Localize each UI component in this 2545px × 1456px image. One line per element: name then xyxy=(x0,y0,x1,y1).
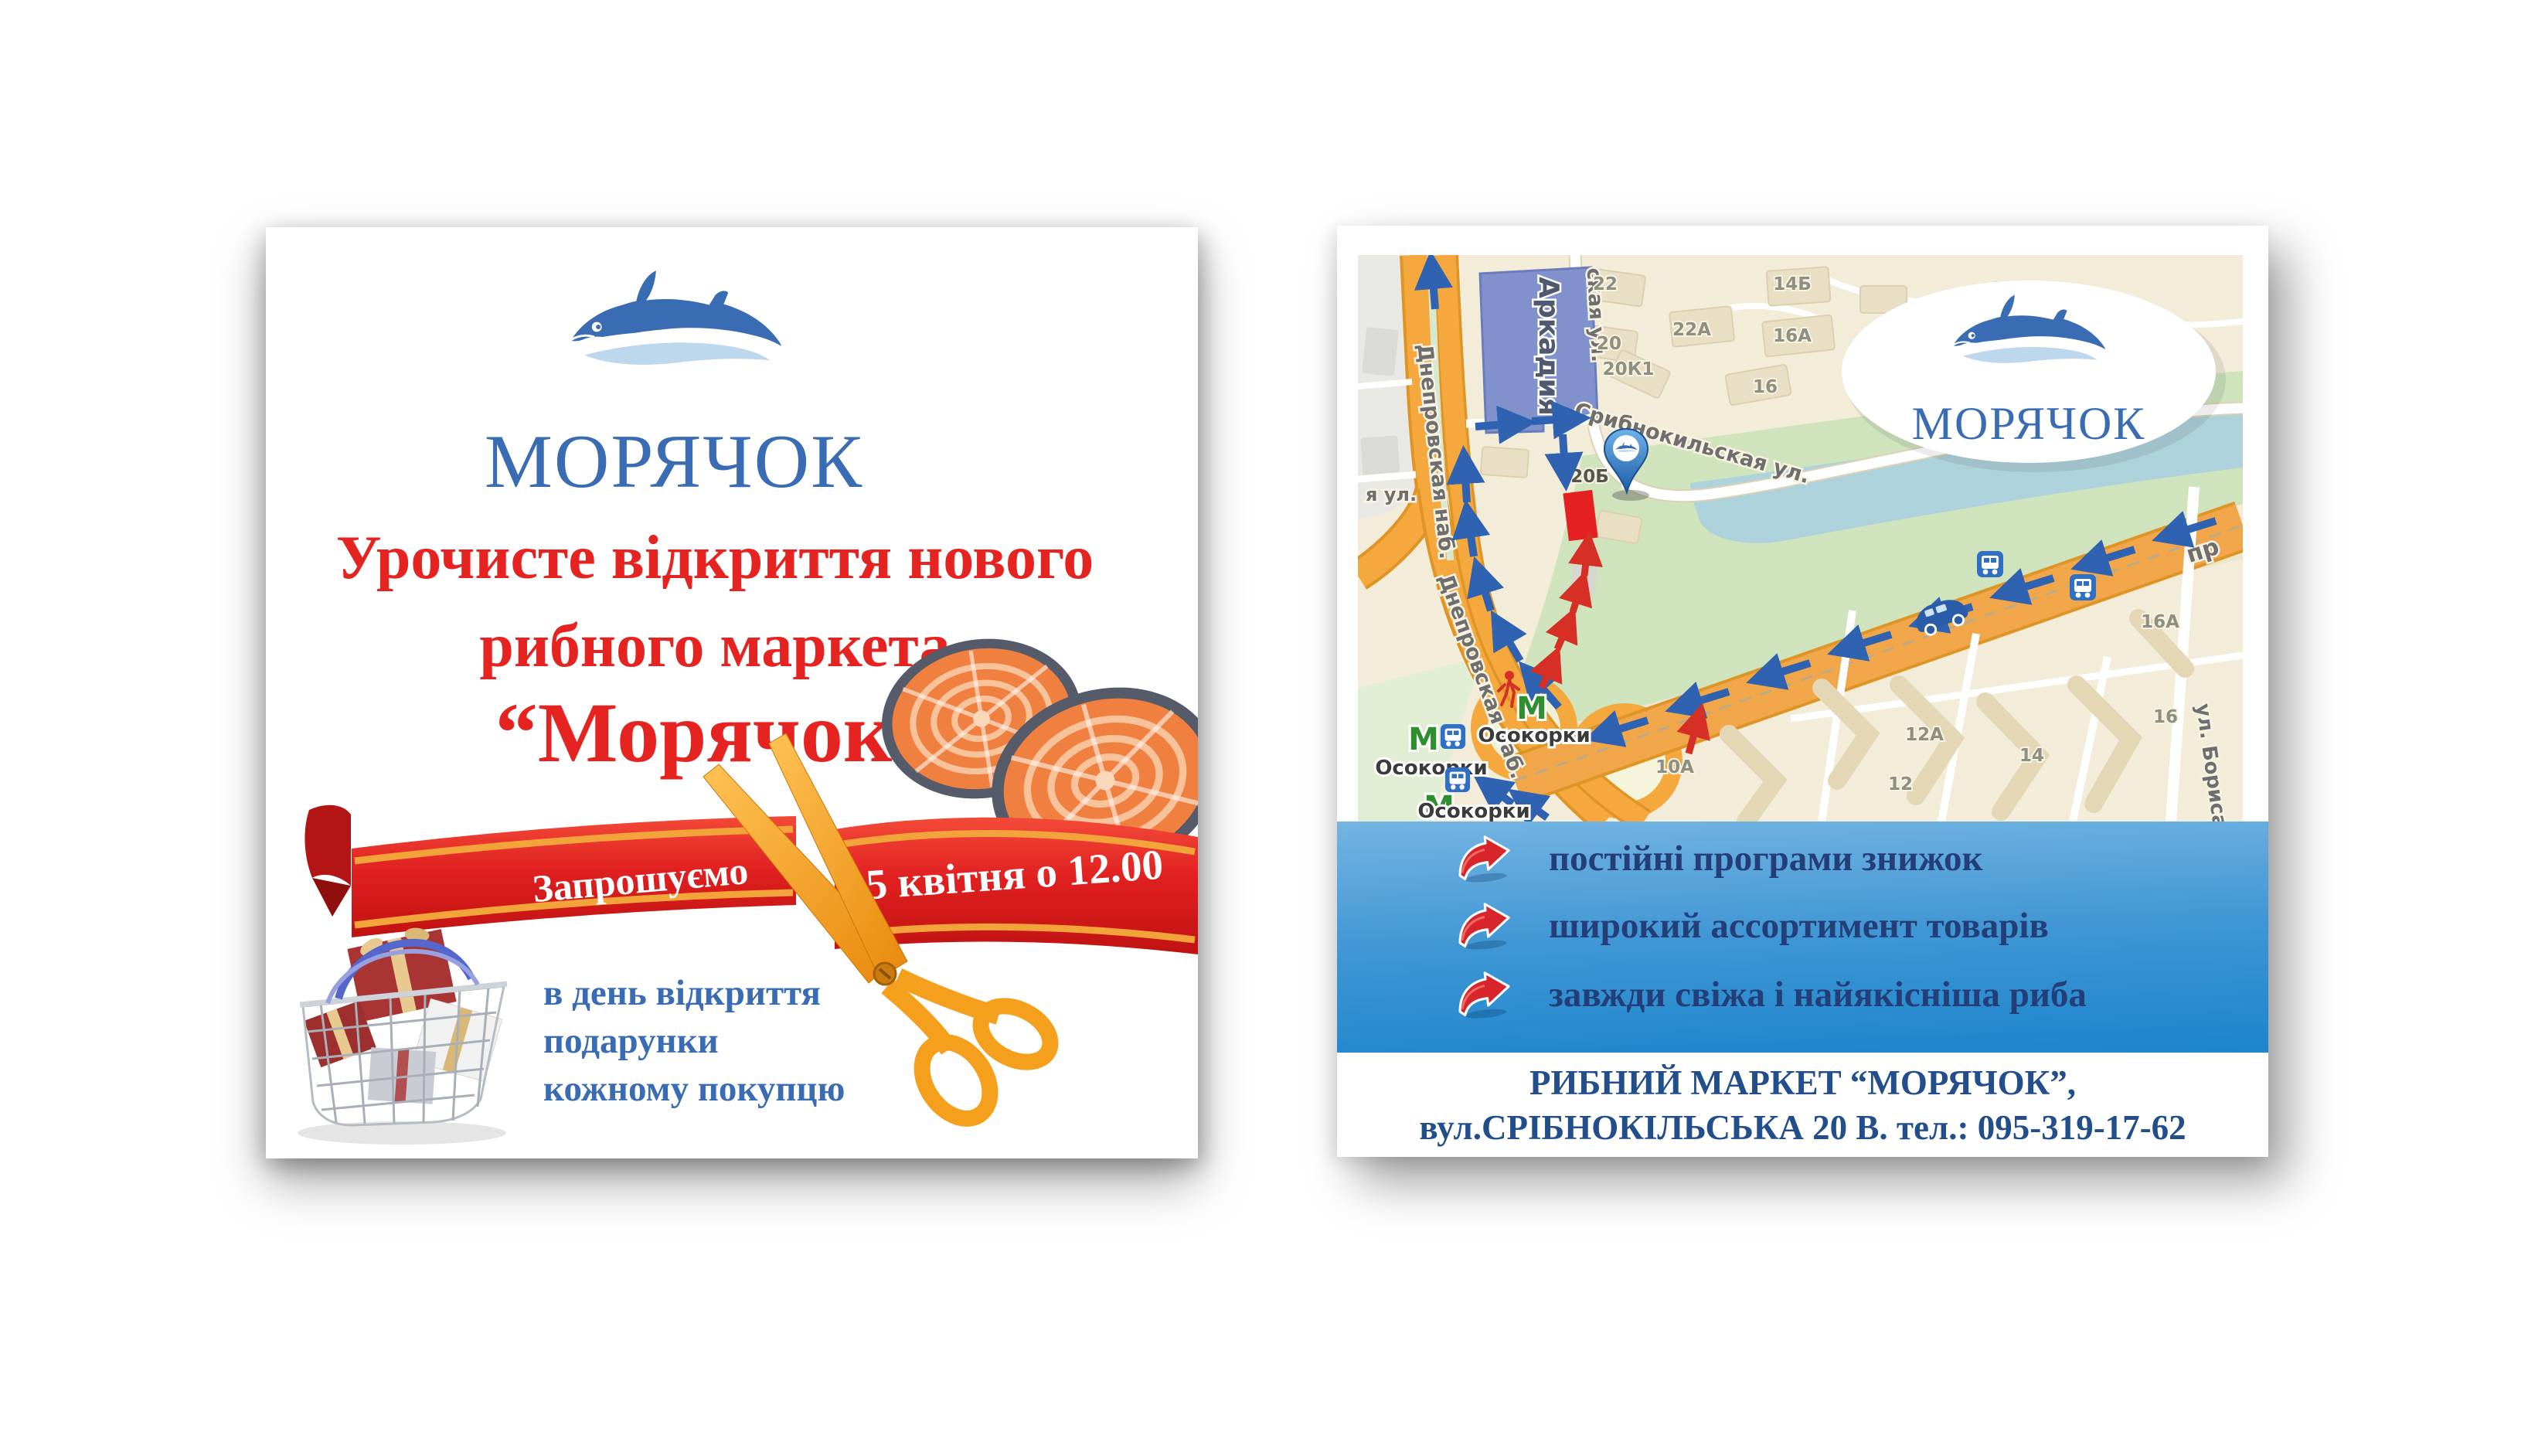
svg-text:16: 16 xyxy=(2153,707,2178,727)
gift-note-line-3: кожному покупцю xyxy=(543,1069,845,1109)
flyer-back: Аркадия Днепровская наб. Днепровская наб… xyxy=(1337,226,2268,1157)
contact-line-2: вул.СРІБНОКІЛЬСЬКА 20 В. тел.: 095-319-1… xyxy=(1419,1105,2186,1150)
shop-location-marker xyxy=(1563,490,1597,541)
svg-text:14Б: 14Б xyxy=(1773,274,1812,294)
contact-line-1: РИБНИЙ МАРКЕТ “МОРЯЧОК”, xyxy=(1529,1060,2076,1105)
brand-wordmark: МОРЯЧОК xyxy=(1912,398,2146,449)
brand-wordmark: МОРЯЧОК xyxy=(485,420,863,504)
fish-logo-icon xyxy=(565,270,781,365)
gift-note-line-2: подарунки xyxy=(543,1021,719,1061)
headline-line-2: рибного маркета xyxy=(479,612,950,680)
svg-text:12: 12 xyxy=(1888,774,1913,794)
metro-label: Осокорки xyxy=(1478,724,1590,747)
bus-stop-icon xyxy=(1445,767,1470,792)
contact-strip: РИБНИЙ МАРКЕТ “МОРЯЧОК”, вул.СРІБНОКІЛЬС… xyxy=(1337,1053,2268,1157)
headline-line-1: Урочисте відкриття нового xyxy=(336,524,1094,592)
benefit-item: завжди свіжа і найякісніша риба xyxy=(1445,970,2087,1019)
benefit-item: широкий ассортимент товарів xyxy=(1445,901,2049,951)
svg-text:20: 20 xyxy=(1597,334,1621,354)
brand-logo: МОРЯЧОК xyxy=(485,270,863,504)
svg-text:Аркадия: Аркадия xyxy=(1533,277,1564,416)
location-map: Аркадия Днепровская наб. Днепровская наб… xyxy=(1358,255,2243,822)
svg-text:12А: 12А xyxy=(1905,725,1944,745)
gift-basket-image xyxy=(298,920,507,1145)
benefit-text: широкий ассортимент товарів xyxy=(1549,905,2049,947)
metro-icon: М xyxy=(1516,691,1547,726)
gift-note-line-1: в день відкриття xyxy=(543,973,821,1013)
benefit-text: постійні програми знижок xyxy=(1549,838,1983,879)
benefit-item: постійні програми знижок xyxy=(1445,834,1983,883)
street-label-fragment: я ул. xyxy=(1366,484,1417,505)
svg-text:14: 14 xyxy=(2019,746,2044,766)
benefit-text: завжди свіжа і найякісніша риба xyxy=(1549,974,2087,1015)
benefits-panel: постійні програми знижок широкий ассорти… xyxy=(1337,822,2268,1053)
benefit-arrow-icon xyxy=(1443,898,1525,954)
svg-text:10А: 10А xyxy=(1655,757,1694,777)
svg-text:16А: 16А xyxy=(2141,612,2179,632)
svg-text:16: 16 xyxy=(1753,377,1778,397)
headline-line-3: “Морячок” xyxy=(495,685,934,780)
svg-text:22: 22 xyxy=(1593,274,1618,294)
metro-icon: М xyxy=(1408,722,1439,757)
svg-text:16А: 16А xyxy=(1773,326,1812,346)
svg-text:22А: 22А xyxy=(1672,320,1711,340)
benefit-arrow-icon xyxy=(1443,967,1525,1022)
flyer-front: МОРЯЧОК Урочисте відкриття нового рибног… xyxy=(266,227,1198,1158)
benefit-arrow-icon xyxy=(1443,831,1525,886)
ribbon-curl xyxy=(305,805,351,886)
bus-stop-icon xyxy=(2070,574,2096,600)
svg-text:20Б: 20Б xyxy=(1570,467,1609,487)
bus-stop-icon xyxy=(1977,551,2003,577)
svg-text:20К1: 20К1 xyxy=(1603,359,1655,379)
bus-stop-icon xyxy=(1441,724,1465,749)
metro-label: Осокорки xyxy=(1375,757,1487,780)
metro-label: Осокорки xyxy=(1417,800,1529,822)
